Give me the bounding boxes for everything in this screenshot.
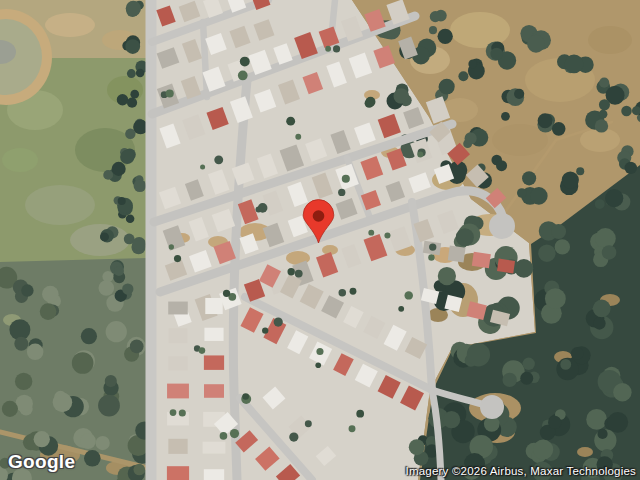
- vegetation: [72, 352, 94, 374]
- vegetation: [315, 362, 321, 368]
- vegetation: [520, 372, 533, 385]
- vegetation: [289, 432, 298, 441]
- vegetation: [240, 57, 250, 67]
- vegetation: [599, 99, 610, 110]
- vegetation: [223, 290, 230, 297]
- vegetation: [15, 395, 32, 412]
- vegetation: [133, 464, 145, 476]
- terrain-patch: [25, 185, 95, 225]
- vegetation: [571, 347, 584, 360]
- vegetation: [552, 122, 566, 136]
- vegetation: [316, 348, 323, 355]
- vegetation: [130, 340, 144, 354]
- vegetation: [287, 268, 294, 275]
- house: [204, 384, 224, 398]
- vegetation: [42, 286, 59, 303]
- vegetation: [456, 228, 474, 246]
- vegetation: [517, 188, 527, 198]
- vegetation: [122, 283, 133, 294]
- vegetation: [538, 245, 555, 262]
- vegetation: [112, 162, 126, 176]
- vegetation: [595, 199, 605, 209]
- vegetation: [80, 433, 96, 449]
- vegetation: [333, 45, 340, 52]
- vegetation: [295, 134, 301, 140]
- house: [203, 442, 226, 454]
- terrain-patch: [70, 224, 130, 256]
- vegetation: [538, 113, 553, 128]
- vegetation: [404, 291, 412, 299]
- vegetation: [199, 347, 206, 354]
- vegetation: [593, 317, 605, 329]
- vegetation: [605, 189, 623, 207]
- vegetation: [430, 11, 441, 22]
- house: [169, 328, 188, 343]
- terrain-patch: [577, 447, 593, 457]
- vegetation: [134, 179, 147, 192]
- vegetation: [429, 243, 436, 250]
- cul-de-sac: [480, 395, 504, 419]
- vegetation: [599, 110, 608, 119]
- vegetation: [555, 239, 570, 254]
- house: [205, 298, 222, 314]
- vegetation: [502, 373, 516, 387]
- house: [204, 469, 224, 480]
- vegetation: [522, 171, 536, 185]
- vegetation: [490, 48, 502, 60]
- vegetation: [174, 255, 181, 262]
- vegetation: [438, 29, 453, 44]
- cul-de-sac: [489, 213, 515, 239]
- vegetation: [214, 155, 223, 164]
- house: [167, 384, 189, 399]
- vegetation: [2, 401, 18, 417]
- vegetation: [179, 409, 186, 416]
- vegetation: [438, 267, 456, 285]
- vegetation: [325, 46, 331, 52]
- vegetation: [14, 337, 28, 351]
- vegetation: [443, 411, 460, 428]
- house: [168, 302, 188, 315]
- house: [497, 259, 515, 274]
- vegetation: [621, 106, 632, 117]
- vegetation: [595, 119, 608, 132]
- vegetation: [127, 69, 136, 78]
- vegetation: [40, 303, 57, 320]
- vegetation: [338, 189, 345, 196]
- vegetation: [96, 436, 110, 450]
- vegetation: [417, 152, 423, 158]
- vegetation: [117, 94, 128, 105]
- street: [203, 22, 207, 97]
- house: [167, 466, 189, 480]
- vegetation: [220, 432, 228, 440]
- satellite-imagery: [0, 0, 640, 480]
- vegetation: [132, 237, 146, 251]
- vegetation: [127, 98, 137, 108]
- vegetation: [114, 266, 124, 276]
- vegetation: [350, 288, 357, 295]
- vegetation: [170, 409, 177, 416]
- house: [448, 246, 466, 263]
- vegetation: [295, 270, 303, 278]
- vegetation: [467, 343, 490, 366]
- vegetation: [103, 170, 113, 180]
- terrain-patch: [2, 148, 38, 172]
- vegetation: [562, 171, 579, 188]
- vegetation: [545, 288, 566, 309]
- terrain-patch: [45, 13, 95, 37]
- house: [204, 328, 223, 341]
- vegetation: [496, 160, 507, 171]
- house: [204, 355, 224, 369]
- vegetation: [597, 429, 607, 439]
- vegetation: [366, 97, 376, 107]
- vegetation: [607, 412, 628, 433]
- vegetation: [120, 150, 134, 164]
- vegetation: [409, 439, 425, 455]
- vegetation: [576, 167, 584, 175]
- house: [472, 252, 491, 268]
- vegetation: [530, 187, 548, 205]
- terrain-patch: [588, 26, 632, 54]
- vegetation: [258, 203, 268, 213]
- vegetation: [533, 439, 553, 459]
- vegetation: [125, 39, 140, 54]
- vegetation: [81, 328, 97, 344]
- vegetation: [465, 132, 477, 144]
- vegetation: [136, 69, 144, 77]
- vegetation: [439, 79, 455, 95]
- vegetation: [613, 383, 631, 401]
- vegetation: [126, 215, 135, 224]
- vegetation: [242, 393, 249, 400]
- vegetation: [599, 78, 609, 88]
- vegetation: [548, 416, 561, 429]
- vegetation: [34, 431, 50, 447]
- vegetation: [126, 1, 141, 16]
- vegetation: [429, 26, 437, 34]
- vegetation: [15, 373, 32, 390]
- vegetation: [349, 425, 356, 432]
- vegetation: [593, 300, 611, 318]
- vegetation: [200, 165, 205, 170]
- vegetation: [527, 35, 545, 53]
- vegetation: [501, 112, 510, 121]
- vegetation: [560, 359, 571, 370]
- vegetation: [595, 228, 616, 249]
- vegetation: [21, 284, 33, 296]
- vegetation: [99, 280, 115, 296]
- vegetation: [393, 88, 409, 104]
- vegetation: [458, 71, 468, 81]
- vegetation: [305, 420, 312, 427]
- imagery-attribution: Imagery ©2026 Airbus, Maxar Technologies: [406, 465, 636, 477]
- vegetation: [169, 244, 174, 249]
- vegetation: [468, 60, 477, 69]
- vegetation: [53, 393, 73, 413]
- vegetation: [106, 321, 127, 342]
- vegetation: [368, 230, 374, 236]
- satellite-map[interactable]: Google Imagery ©2026 Airbus, Maxar Techn…: [0, 0, 640, 480]
- vegetation: [356, 410, 364, 418]
- vegetation: [514, 89, 524, 99]
- vegetation: [342, 175, 350, 183]
- vegetation: [339, 289, 347, 297]
- vegetation: [286, 117, 295, 126]
- house: [168, 439, 187, 454]
- vegetation: [100, 232, 109, 241]
- vegetation: [565, 54, 584, 73]
- vegetation: [551, 224, 566, 239]
- vegetation: [238, 71, 248, 81]
- vegetation: [602, 245, 616, 259]
- house: [168, 356, 187, 370]
- vegetation: [625, 162, 637, 174]
- vegetation: [384, 232, 390, 238]
- vegetation: [230, 429, 239, 438]
- vegetation: [105, 375, 117, 387]
- vegetation: [522, 358, 534, 370]
- vegetation: [274, 317, 283, 326]
- vegetation: [98, 395, 120, 417]
- vegetation: [262, 327, 268, 333]
- vegetation: [27, 344, 44, 361]
- vegetation: [398, 306, 404, 312]
- vegetation: [586, 409, 607, 430]
- vegetation: [428, 254, 434, 260]
- google-logo[interactable]: Google: [8, 451, 75, 473]
- vegetation: [130, 90, 139, 99]
- vegetation: [84, 450, 101, 467]
- vegetation: [166, 90, 174, 98]
- vegetation: [118, 197, 126, 205]
